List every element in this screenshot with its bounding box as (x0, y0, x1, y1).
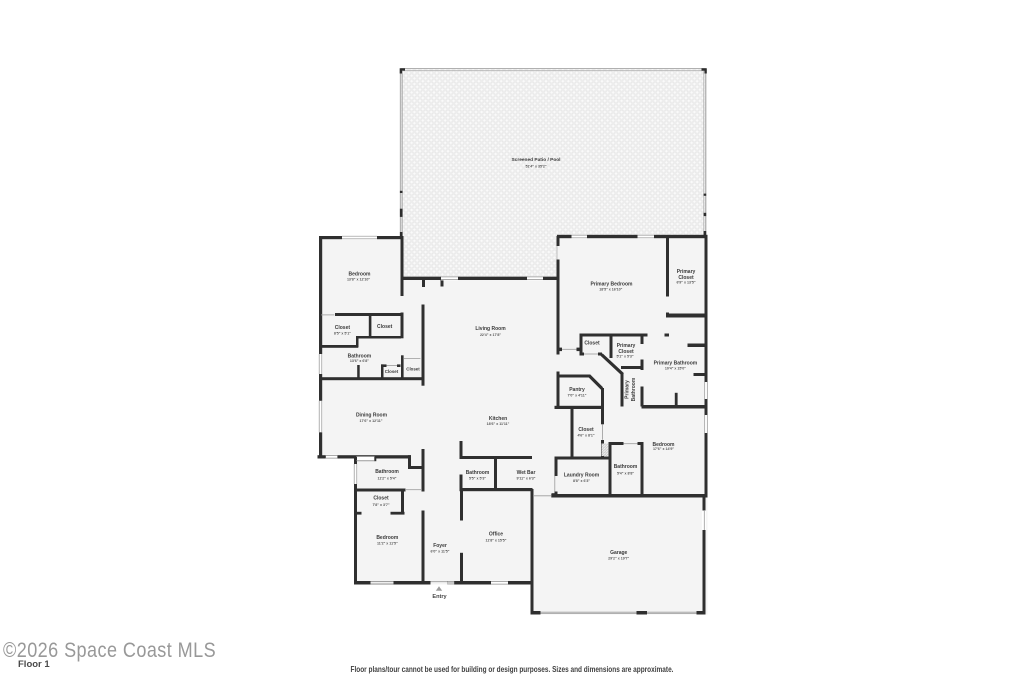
svg-text:5'4" x 8'8": 5'4" x 8'8" (617, 472, 634, 476)
svg-text:Bathroom: Bathroom (631, 377, 637, 401)
svg-text:Closet: Closet (335, 325, 351, 331)
svg-text:6'9" x 13'5": 6'9" x 13'5" (676, 280, 695, 284)
svg-text:Office: Office (489, 532, 503, 538)
svg-text:Dining Room: Dining Room (356, 413, 388, 419)
svg-text:Closet: Closet (578, 427, 594, 433)
svg-text:11'2" x 5'4": 11'2" x 5'4" (378, 477, 397, 481)
svg-text:Closet: Closet (373, 496, 389, 502)
svg-text:Screened Patio / Pool: Screened Patio / Pool (511, 157, 560, 163)
svg-text:22'4" x 17'8": 22'4" x 17'8" (480, 333, 501, 337)
svg-text:11'2" x 11'5": 11'2" x 11'5" (377, 542, 398, 546)
svg-text:29'2" x 19'7": 29'2" x 19'7" (608, 556, 629, 560)
svg-text:51'4" x 35'2": 51'4" x 35'2" (525, 165, 546, 169)
svg-text:Closet: Closet (584, 341, 600, 347)
svg-text:Closet: Closet (385, 369, 399, 374)
svg-text:18'6" x 11'11": 18'6" x 11'11" (487, 422, 510, 426)
svg-text:5'1" x 5'3": 5'1" x 5'3" (616, 355, 633, 359)
svg-text:11'8" x 15'5": 11'8" x 15'5" (486, 538, 507, 542)
svg-text:Wet Bar: Wet Bar (517, 470, 536, 476)
svg-text:Living Room: Living Room (475, 326, 506, 332)
svg-text:17'6" x 12'11": 17'6" x 12'11" (360, 419, 383, 423)
svg-text:Primary Bedroom: Primary Bedroom (591, 282, 634, 288)
svg-text:4'6" x 8'1": 4'6" x 8'1" (577, 433, 594, 437)
svg-text:6'0" x 11'5": 6'0" x 11'5" (431, 549, 450, 553)
svg-text:10'4" x 15'0": 10'4" x 15'0" (665, 367, 686, 371)
svg-text:Garage: Garage (610, 550, 627, 556)
svg-text:Primary: Primary (624, 380, 630, 399)
svg-text:5'5" x 5'3": 5'5" x 5'3" (469, 476, 486, 480)
svg-text:Pantry: Pantry (569, 387, 585, 393)
svg-text:Bathroom: Bathroom (466, 470, 490, 476)
svg-text:9'11" x 6'3": 9'11" x 6'3" (517, 476, 536, 480)
svg-text:Entry: Entry (432, 594, 447, 600)
svg-text:7'0" x 4'11": 7'0" x 4'11" (568, 393, 587, 397)
svg-text:Primary Bathroom: Primary Bathroom (654, 360, 698, 366)
svg-text:Closet: Closet (377, 324, 393, 330)
svg-text:Bathroom: Bathroom (375, 469, 399, 475)
svg-text:8'5" x 5'1": 8'5" x 5'1" (334, 331, 351, 335)
svg-text:13'6" x 6'8": 13'6" x 6'8" (350, 359, 369, 363)
svg-text:Closet: Closet (406, 367, 420, 372)
svg-text:Bathroom: Bathroom (614, 464, 638, 470)
svg-text:Foyer: Foyer (433, 543, 447, 549)
svg-text:17'6" x 14'9": 17'6" x 14'9" (653, 447, 674, 451)
svg-text:Bedroom: Bedroom (349, 271, 372, 277)
svg-text:13'8" x 12'10": 13'8" x 12'10" (347, 278, 370, 282)
svg-text:Bedroom: Bedroom (376, 535, 399, 541)
svg-text:Laundry Room: Laundry Room (564, 473, 600, 479)
svg-text:7'8" x 3'7": 7'8" x 3'7" (372, 503, 389, 507)
svg-text:18'5" x 16'10": 18'5" x 16'10" (599, 288, 622, 292)
svg-text:8'8" x 6'3": 8'8" x 6'3" (573, 479, 590, 483)
